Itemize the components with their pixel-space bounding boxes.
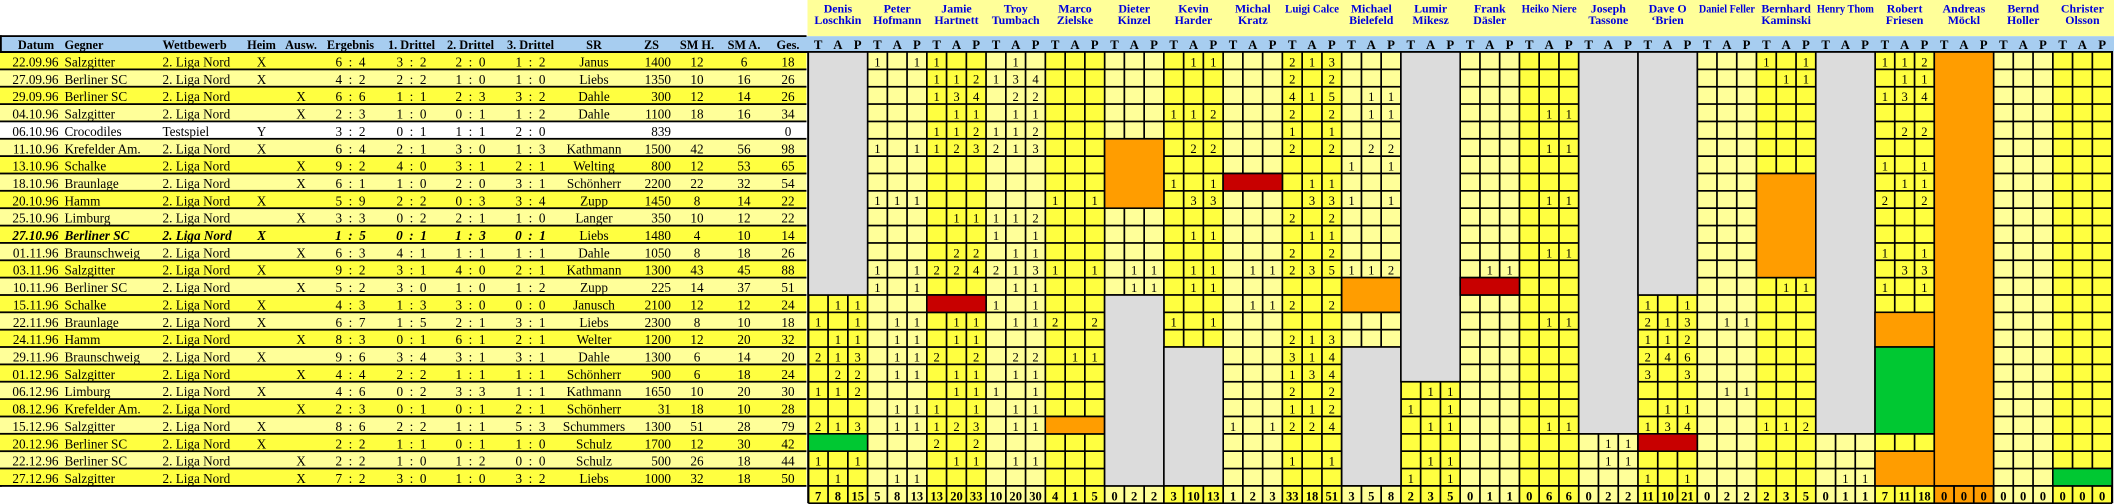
svg-text:Olsson: Olsson: [2065, 13, 2100, 27]
svg-text:7: 7: [815, 489, 821, 503]
svg-text:3: 3: [1348, 489, 1354, 503]
svg-text:1: 1: [914, 281, 920, 295]
svg-text:1: 1: [914, 420, 920, 434]
svg-text:3: 3: [1664, 420, 1670, 434]
svg-text:0: 0: [2040, 489, 2046, 503]
svg-text:1: 1: [1427, 455, 1433, 469]
svg-text:1: 1: [993, 73, 999, 87]
svg-text:0: 0: [1526, 489, 1532, 503]
svg-text:24.11.96: 24.11.96: [13, 332, 59, 347]
svg-text:1 : 1: 1 : 1: [515, 384, 545, 399]
svg-text:1: 1: [1506, 264, 1512, 278]
svg-text:0: 0: [1981, 489, 1987, 503]
svg-text:Salzgitter: Salzgitter: [65, 263, 116, 278]
svg-text:Ausw.: Ausw.: [285, 38, 317, 52]
svg-text:0 : 1: 0 : 1: [396, 402, 426, 417]
svg-text:Schulz: Schulz: [576, 454, 612, 469]
svg-text:1: 1: [1210, 264, 1216, 278]
svg-text:1: 1: [1388, 107, 1394, 121]
svg-text:1: 1: [1921, 246, 1927, 260]
svg-text:10.11.96: 10.11.96: [13, 280, 59, 295]
svg-text:1: 1: [934, 125, 940, 139]
svg-text:1: 1: [1388, 194, 1394, 208]
svg-text:1: 1: [1743, 385, 1749, 399]
svg-text:A: A: [1130, 38, 1140, 52]
svg-text:1 : 0: 1 : 0: [455, 280, 485, 295]
svg-text:1: 1: [835, 333, 841, 347]
svg-text:1: 1: [894, 472, 900, 486]
svg-text:42: 42: [781, 436, 794, 451]
svg-text:5: 5: [1803, 489, 1809, 503]
svg-text:2: 2: [1151, 489, 1157, 503]
svg-text:Limburg: Limburg: [65, 211, 111, 226]
svg-text:2: 2: [1645, 350, 1651, 364]
svg-text:1: 1: [1052, 264, 1058, 278]
svg-text:A: A: [1841, 38, 1851, 52]
svg-text:1: 1: [1862, 489, 1868, 503]
svg-text:12: 12: [690, 89, 703, 104]
svg-text:2: 2: [1763, 489, 1769, 503]
svg-text:900: 900: [651, 367, 671, 382]
svg-text:1: 1: [1348, 194, 1354, 208]
svg-text:12: 12: [737, 297, 750, 312]
svg-text:Berliner SC: Berliner SC: [65, 72, 128, 87]
svg-text:1: 1: [1092, 350, 1098, 364]
svg-text:2: 2: [1289, 73, 1295, 87]
svg-text:3 : 2: 3 : 2: [515, 471, 545, 486]
svg-text:3 : 1: 3 : 1: [515, 350, 545, 365]
svg-text:9 : 2: 9 : 2: [335, 159, 365, 174]
svg-text:1: 1: [1921, 73, 1927, 87]
svg-text:X: X: [257, 141, 267, 156]
svg-text:A: A: [1604, 38, 1614, 52]
svg-text:A: A: [1722, 38, 1732, 52]
svg-text:2. Liga Nord: 2. Liga Nord: [163, 419, 231, 434]
svg-text:2 : 0: 2 : 0: [455, 176, 485, 191]
svg-text:1: 1: [1882, 55, 1888, 69]
svg-text:X: X: [296, 471, 306, 486]
svg-text:6 : 6: 6 : 6: [335, 89, 365, 104]
svg-text:1 : 1: 1 : 1: [455, 245, 485, 260]
svg-text:Tassone: Tassone: [1588, 13, 1628, 27]
svg-text:0: 0: [1941, 489, 1947, 503]
svg-text:Berliner SC: Berliner SC: [65, 89, 128, 104]
svg-text:2. Liga Nord: 2. Liga Nord: [163, 297, 231, 312]
svg-text:1: 1: [1348, 160, 1354, 174]
svg-text:8: 8: [694, 315, 701, 330]
svg-text:P: P: [1269, 38, 1277, 52]
svg-text:T: T: [1466, 38, 1475, 52]
svg-text:13.10.96: 13.10.96: [12, 159, 59, 174]
svg-text:1: 1: [1882, 246, 1888, 260]
svg-text:500: 500: [651, 454, 671, 469]
svg-text:Welter: Welter: [577, 332, 612, 347]
svg-text:01.12.96: 01.12.96: [12, 367, 59, 382]
svg-text:1: 1: [1289, 125, 1295, 139]
svg-text:4 : 0: 4 : 0: [455, 263, 485, 278]
svg-text:29.09.96: 29.09.96: [12, 89, 59, 104]
svg-text:8: 8: [835, 489, 841, 503]
svg-text:T: T: [873, 38, 882, 52]
svg-text:4: 4: [1921, 90, 1928, 104]
svg-text:1: 1: [1487, 264, 1493, 278]
svg-text:1: 1: [894, 368, 900, 382]
svg-text:1: 1: [1408, 472, 1414, 486]
svg-text:1: 1: [815, 385, 821, 399]
svg-text:15: 15: [851, 489, 864, 503]
svg-text:A: A: [2078, 38, 2088, 52]
svg-text:3: 3: [1921, 264, 1927, 278]
svg-text:1: 1: [1309, 229, 1315, 243]
svg-text:Janusch: Janusch: [573, 297, 615, 312]
svg-text:4: 4: [1684, 420, 1691, 434]
svg-text:1: 1: [1684, 298, 1690, 312]
svg-text:16: 16: [737, 72, 751, 87]
svg-text:2: 2: [953, 142, 959, 156]
svg-text:0: 0: [2099, 489, 2105, 503]
svg-text:32: 32: [690, 471, 703, 486]
svg-text:1300: 1300: [645, 350, 672, 365]
svg-text:3: 3: [1309, 264, 1315, 278]
svg-text:3: 3: [1032, 142, 1038, 156]
svg-text:Schulz: Schulz: [576, 436, 612, 451]
svg-text:1: 1: [835, 472, 841, 486]
svg-text:X: X: [257, 263, 267, 278]
svg-text:0 : 2: 0 : 2: [396, 211, 426, 226]
svg-text:X: X: [296, 176, 306, 191]
svg-text:1: 1: [1032, 368, 1038, 382]
svg-text:2. Liga Nord: 2. Liga Nord: [163, 263, 231, 278]
svg-text:2: 2: [1210, 107, 1216, 121]
svg-text:10: 10: [690, 384, 704, 399]
svg-text:1: 1: [1210, 229, 1216, 243]
svg-text:Berliner SC: Berliner SC: [65, 436, 128, 451]
svg-text:Henry Thom: Henry Thom: [1817, 2, 1874, 16]
svg-text:2: 2: [1921, 125, 1927, 139]
svg-text:18: 18: [781, 55, 795, 70]
svg-text:1: 1: [1092, 264, 1098, 278]
svg-text:Schönherr: Schönherr: [567, 367, 622, 382]
svg-text:51: 51: [1326, 489, 1339, 503]
svg-text:2: 2: [1329, 385, 1335, 399]
svg-text:1: 1: [1862, 472, 1868, 486]
svg-text:12: 12: [690, 297, 703, 312]
svg-text:Gegner: Gegner: [65, 38, 104, 52]
svg-text:Schönherr: Schönherr: [567, 176, 622, 191]
svg-text:22: 22: [781, 211, 794, 226]
svg-text:1: 1: [855, 333, 861, 347]
svg-text:15.12.96: 15.12.96: [12, 419, 59, 434]
svg-text:20: 20: [781, 350, 795, 365]
svg-text:42: 42: [690, 141, 703, 156]
svg-text:6: 6: [1566, 489, 1572, 503]
svg-text:9 : 6: 9 : 6: [335, 350, 365, 365]
svg-text:01.11.96: 01.11.96: [13, 245, 59, 260]
svg-text:1: 1: [815, 455, 821, 469]
svg-text:8: 8: [1388, 489, 1394, 503]
svg-text:18: 18: [737, 245, 751, 260]
svg-text:A: A: [1070, 38, 1080, 52]
svg-text:1: 1: [1368, 264, 1374, 278]
svg-text:20: 20: [1009, 489, 1022, 503]
svg-text:14: 14: [690, 280, 704, 295]
svg-text:1: 1: [1032, 316, 1038, 330]
svg-text:Berliner SC: Berliner SC: [64, 228, 130, 243]
svg-text:1: 1: [1645, 333, 1651, 347]
svg-text:3 : 0: 3 : 0: [455, 297, 485, 312]
svg-text:2: 2: [934, 264, 940, 278]
svg-text:1: 1: [1645, 420, 1651, 434]
svg-text:4 : 3: 4 : 3: [335, 297, 365, 312]
svg-text:13: 13: [1207, 489, 1220, 503]
svg-text:2: 2: [973, 125, 979, 139]
svg-text:3: 3: [1329, 194, 1335, 208]
svg-text:12: 12: [690, 436, 703, 451]
svg-text:4: 4: [1032, 73, 1039, 87]
svg-text:1: 1: [894, 420, 900, 434]
svg-text:1450: 1450: [645, 193, 672, 208]
svg-text:2: 2: [1289, 333, 1295, 347]
svg-text:12: 12: [690, 332, 703, 347]
svg-text:2: 2: [1329, 246, 1335, 260]
svg-text:T: T: [1347, 38, 1356, 52]
svg-text:11.10.96: 11.10.96: [13, 141, 59, 156]
svg-text:1 : 5: 1 : 5: [396, 315, 426, 330]
svg-text:1: 1: [1546, 316, 1552, 330]
svg-text:7: 7: [1882, 489, 1888, 503]
svg-text:1: 1: [1447, 403, 1453, 417]
svg-text:0 : 1: 0 : 1: [396, 124, 426, 139]
svg-text:Zupp: Zupp: [580, 193, 608, 208]
svg-text:Berliner SC: Berliner SC: [65, 454, 128, 469]
svg-text:P: P: [1565, 38, 1573, 52]
svg-text:1: 1: [835, 350, 841, 364]
svg-text:1: 1: [1566, 316, 1572, 330]
svg-text:Kinzel: Kinzel: [1118, 13, 1152, 27]
svg-text:2 : 0: 2 : 0: [515, 124, 545, 139]
svg-text:1: 1: [1289, 403, 1295, 417]
svg-text:2 : 0: 2 : 0: [455, 55, 485, 70]
svg-text:839: 839: [651, 124, 671, 139]
svg-text:43: 43: [690, 263, 704, 278]
svg-text:1: 1: [1783, 281, 1789, 295]
svg-text:T: T: [1762, 38, 1771, 52]
svg-text:3: 3: [1309, 194, 1315, 208]
svg-text:1: 1: [914, 264, 920, 278]
svg-text:2 : 1: 2 : 1: [455, 315, 485, 330]
svg-text:3 : 1: 3 : 1: [515, 176, 545, 191]
svg-text:1200: 1200: [645, 332, 672, 347]
svg-text:1: 1: [914, 472, 920, 486]
svg-text:12: 12: [737, 211, 750, 226]
svg-text:1: 1: [1190, 264, 1196, 278]
svg-text:2 : 2: 2 : 2: [396, 193, 426, 208]
svg-text:2: 2: [973, 246, 979, 260]
svg-text:0: 0: [2020, 489, 2026, 503]
svg-text:A: A: [1367, 38, 1377, 52]
svg-text:0 : 3: 0 : 3: [455, 193, 485, 208]
svg-text:0 : 1: 0 : 1: [515, 228, 546, 243]
svg-text:1: 1: [1309, 333, 1315, 347]
svg-text:50: 50: [781, 471, 795, 486]
svg-text:1: 1: [973, 333, 979, 347]
svg-text:1: 1: [1506, 489, 1512, 503]
svg-text:2 : 2: 2 : 2: [396, 367, 426, 382]
svg-text:X: X: [296, 107, 306, 122]
svg-text:1: 1: [1032, 107, 1038, 121]
svg-text:2: 2: [1408, 489, 1414, 503]
svg-text:3: 3: [1684, 316, 1690, 330]
svg-text:34: 34: [781, 107, 795, 122]
svg-text:3 : 1: 3 : 1: [455, 350, 485, 365]
svg-text:1: 1: [1072, 350, 1078, 364]
svg-text:24: 24: [781, 297, 795, 312]
svg-text:0 : 0: 0 : 0: [515, 454, 545, 469]
svg-text:1: 1: [855, 455, 861, 469]
svg-text:2 : 1: 2 : 1: [515, 263, 545, 278]
svg-text:1: 1: [973, 385, 979, 399]
svg-text:22: 22: [781, 193, 794, 208]
svg-text:27.10.96: 27.10.96: [11, 228, 59, 243]
svg-text:Ges.: Ges.: [777, 38, 800, 52]
svg-text:Holler: Holler: [2007, 13, 2040, 27]
svg-text:0: 0: [1111, 489, 1117, 503]
svg-text:2: 2: [1882, 194, 1888, 208]
svg-text:X: X: [296, 89, 306, 104]
svg-text:0: 0: [2000, 489, 2006, 503]
svg-text:1: 1: [1684, 472, 1690, 486]
svg-text:A: A: [952, 38, 962, 52]
svg-text:5: 5: [874, 489, 880, 503]
svg-text:Schummers: Schummers: [563, 419, 625, 434]
svg-text:1: 1: [1171, 107, 1177, 121]
svg-text:88: 88: [781, 263, 795, 278]
svg-text:Kathmann: Kathmann: [567, 141, 622, 156]
svg-text:X: X: [257, 436, 267, 451]
svg-text:2: 2: [993, 264, 999, 278]
svg-text:1 : 0: 1 : 0: [455, 471, 485, 486]
svg-text:1: 1: [1032, 403, 1038, 417]
svg-text:10: 10: [690, 72, 704, 87]
svg-text:37: 37: [737, 280, 751, 295]
svg-text:2: 2: [815, 420, 821, 434]
svg-text:1: 1: [1605, 455, 1611, 469]
svg-text:2 : 2: 2 : 2: [396, 419, 426, 434]
svg-text:Hartnett: Hartnett: [934, 13, 978, 27]
svg-text:3: 3: [1032, 264, 1038, 278]
svg-text:Dahle: Dahle: [578, 89, 610, 104]
svg-text:2: 2: [1032, 212, 1038, 226]
svg-text:14: 14: [737, 350, 751, 365]
svg-text:Kratz: Kratz: [1238, 13, 1268, 27]
svg-text:2: 2: [1092, 316, 1098, 330]
svg-text:300: 300: [651, 89, 671, 104]
svg-text:X: X: [257, 193, 267, 208]
svg-text:2: 2: [993, 142, 999, 156]
svg-text:A: A: [1781, 38, 1791, 52]
svg-text:Tumbach: Tumbach: [992, 13, 1040, 27]
svg-text:Langer: Langer: [575, 211, 613, 226]
svg-text:1: 1: [1645, 298, 1651, 312]
svg-text:1: 1: [1901, 55, 1907, 69]
svg-text:3 : 0: 3 : 0: [396, 471, 426, 486]
svg-text:1 : 2: 1 : 2: [515, 280, 545, 295]
svg-text:SM H.: SM H.: [680, 38, 714, 52]
svg-text:45: 45: [737, 263, 751, 278]
svg-text:T: T: [1051, 38, 1060, 52]
svg-text:4: 4: [973, 264, 980, 278]
svg-text:T: T: [992, 38, 1001, 52]
svg-text:2. Liga Nord: 2. Liga Nord: [163, 350, 231, 365]
svg-text:P: P: [1387, 38, 1395, 52]
svg-text:T: T: [1169, 38, 1178, 52]
svg-text:1: 1: [894, 316, 900, 330]
svg-text:350: 350: [651, 211, 671, 226]
svg-text:4: 4: [694, 228, 701, 243]
svg-text:3: 3: [1269, 489, 1275, 503]
svg-text:2. Liga Nord: 2. Liga Nord: [163, 454, 231, 469]
svg-text:2: 2: [1329, 107, 1335, 121]
svg-text:1: 1: [953, 455, 959, 469]
svg-text:P: P: [1506, 38, 1514, 52]
svg-text:2: 2: [1289, 107, 1295, 121]
svg-text:T: T: [1703, 38, 1712, 52]
svg-text:1050: 1050: [645, 245, 672, 260]
svg-text:98: 98: [781, 141, 795, 156]
svg-text:1650: 1650: [645, 384, 672, 399]
svg-text:1 : 0: 1 : 0: [396, 107, 426, 122]
svg-text:10: 10: [737, 315, 751, 330]
svg-text:1: 1: [973, 316, 979, 330]
svg-text:1: 1: [1605, 437, 1611, 451]
svg-text:Schönherr: Schönherr: [567, 402, 622, 417]
svg-text:Dahle: Dahle: [578, 245, 610, 260]
svg-text:28: 28: [781, 402, 795, 417]
svg-text:2: 2: [855, 385, 861, 399]
svg-text:1: 1: [874, 194, 880, 208]
svg-text:1 : 5: 1 : 5: [335, 228, 366, 243]
svg-text:3: 3: [1783, 489, 1789, 503]
svg-text:A: A: [893, 38, 903, 52]
svg-text:Hamm: Hamm: [65, 332, 102, 347]
svg-text:2 : 3: 2 : 3: [335, 402, 365, 417]
svg-text:2. Liga Nord: 2. Liga Nord: [163, 315, 231, 330]
svg-text:1: 1: [1210, 177, 1216, 191]
svg-text:Dahle: Dahle: [578, 107, 610, 122]
svg-text:1: 1: [1250, 264, 1256, 278]
svg-text:51: 51: [781, 280, 794, 295]
svg-text:3 : 2: 3 : 2: [335, 124, 365, 139]
svg-text:2: 2: [1329, 298, 1335, 312]
svg-text:1 : 3: 1 : 3: [515, 141, 545, 156]
svg-text:6: 6: [694, 350, 701, 365]
svg-text:3 : 3: 3 : 3: [455, 384, 485, 399]
svg-text:2100: 2100: [645, 297, 672, 312]
svg-text:Daniel Feller: Daniel Feller: [1699, 2, 1756, 16]
svg-text:1: 1: [914, 55, 920, 69]
svg-text:0 : 1: 0 : 1: [396, 228, 427, 243]
svg-text:Dahle: Dahle: [578, 350, 610, 365]
svg-text:1: 1: [914, 403, 920, 417]
svg-text:1: 1: [894, 333, 900, 347]
svg-text:1: 1: [855, 298, 861, 312]
svg-text:65: 65: [781, 159, 795, 174]
svg-text:3: 3: [973, 420, 979, 434]
svg-text:10: 10: [737, 228, 751, 243]
svg-text:03.11.96: 03.11.96: [13, 263, 59, 278]
svg-text:2. Liga Nord: 2. Liga Nord: [163, 211, 231, 226]
svg-text:Bielefeld: Bielefeld: [1349, 13, 1394, 27]
